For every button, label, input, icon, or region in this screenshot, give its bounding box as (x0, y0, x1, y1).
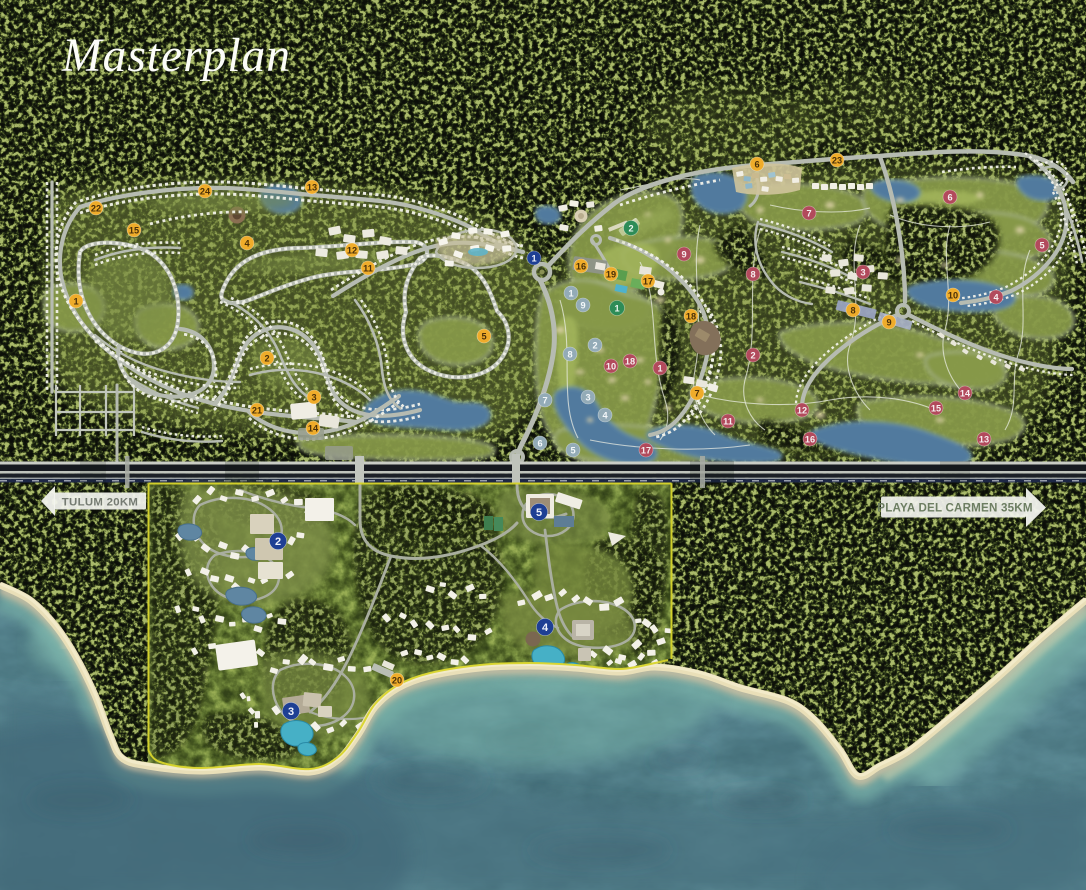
svg-text:13: 13 (307, 182, 317, 192)
svg-text:11: 11 (363, 263, 373, 273)
svg-text:19: 19 (606, 269, 616, 279)
svg-text:16: 16 (576, 261, 586, 271)
svg-text:5: 5 (1039, 240, 1044, 250)
svg-text:13: 13 (979, 434, 989, 444)
svg-text:2: 2 (750, 350, 755, 360)
svg-text:4: 4 (602, 410, 608, 420)
svg-text:15: 15 (931, 403, 941, 413)
svg-text:1: 1 (568, 288, 573, 298)
svg-text:21: 21 (252, 405, 262, 415)
svg-text:15: 15 (129, 225, 139, 235)
svg-text:18: 18 (686, 311, 696, 321)
svg-text:17: 17 (643, 276, 653, 286)
svg-text:20: 20 (392, 675, 402, 685)
svg-text:3: 3 (311, 392, 316, 402)
svg-text:18: 18 (625, 356, 635, 366)
svg-text:6: 6 (537, 438, 542, 448)
svg-text:23: 23 (832, 155, 842, 165)
svg-text:5: 5 (570, 445, 575, 455)
svg-text:4: 4 (542, 622, 549, 634)
svg-text:4: 4 (993, 292, 999, 302)
svg-text:7: 7 (806, 208, 811, 218)
svg-text:6: 6 (754, 159, 759, 169)
svg-text:11: 11 (723, 416, 733, 426)
svg-text:2: 2 (264, 353, 269, 363)
svg-text:8: 8 (850, 305, 855, 315)
svg-text:8: 8 (750, 269, 755, 279)
svg-text:5: 5 (481, 331, 486, 341)
svg-text:1: 1 (73, 296, 78, 306)
svg-text:3: 3 (585, 392, 590, 402)
svg-text:22: 22 (91, 203, 101, 213)
svg-text:12: 12 (347, 245, 357, 255)
svg-text:3: 3 (288, 706, 294, 718)
svg-text:9: 9 (681, 249, 686, 259)
svg-text:17: 17 (641, 445, 651, 455)
svg-text:9: 9 (886, 317, 891, 327)
svg-text:1: 1 (531, 253, 536, 263)
svg-text:9: 9 (580, 300, 585, 310)
svg-text:8: 8 (567, 349, 572, 359)
svg-text:2: 2 (275, 536, 281, 548)
svg-text:Masterplan: Masterplan (61, 30, 291, 82)
svg-text:7: 7 (694, 388, 699, 398)
svg-text:24: 24 (200, 186, 211, 196)
svg-text:10: 10 (948, 290, 958, 300)
svg-text:6: 6 (947, 192, 952, 202)
svg-text:14: 14 (960, 388, 971, 398)
svg-text:7: 7 (542, 395, 547, 405)
svg-text:4: 4 (244, 238, 250, 248)
svg-text:16: 16 (805, 434, 815, 444)
svg-text:3: 3 (860, 267, 865, 277)
svg-text:12: 12 (797, 405, 807, 415)
svg-text:2: 2 (628, 223, 633, 233)
svg-text:2: 2 (592, 340, 597, 350)
svg-text:1: 1 (614, 303, 619, 313)
svg-text:PLAYA DEL CARMEN 35KM: PLAYA DEL CARMEN 35KM (877, 502, 1032, 515)
svg-text:14: 14 (308, 423, 319, 433)
svg-text:5: 5 (536, 507, 542, 519)
svg-text:10: 10 (606, 361, 616, 371)
svg-text:1: 1 (657, 363, 662, 373)
svg-text:TULUM 20KM: TULUM 20KM (62, 497, 138, 509)
